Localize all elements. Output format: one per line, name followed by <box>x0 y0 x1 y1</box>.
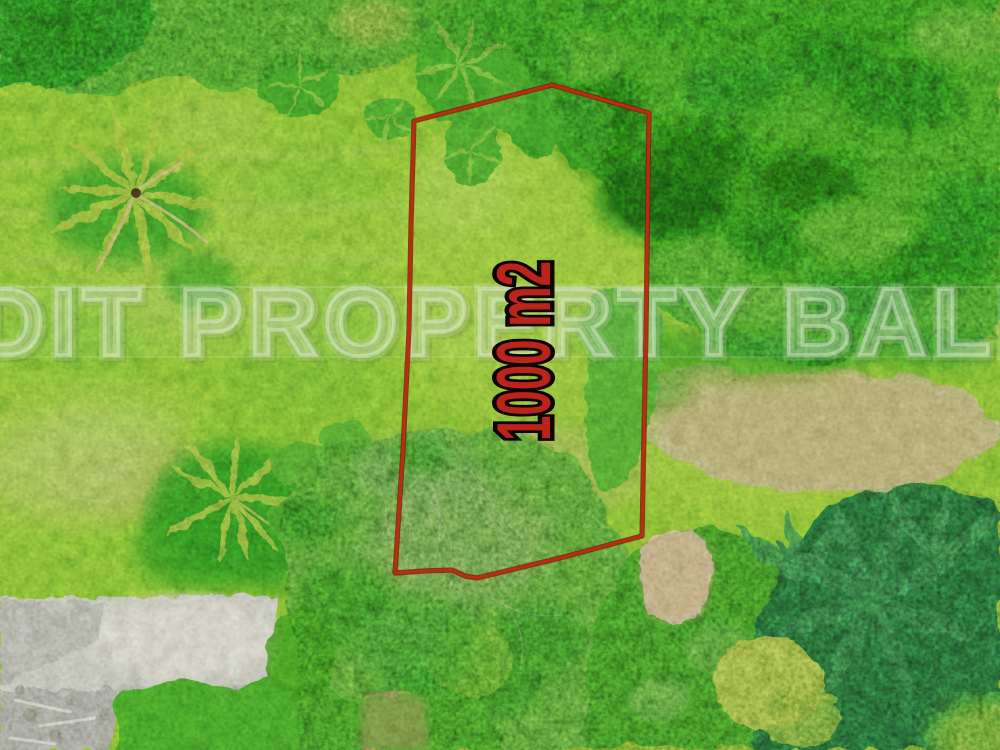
svg-text:1000 m2: 1000 m2 <box>482 261 567 441</box>
